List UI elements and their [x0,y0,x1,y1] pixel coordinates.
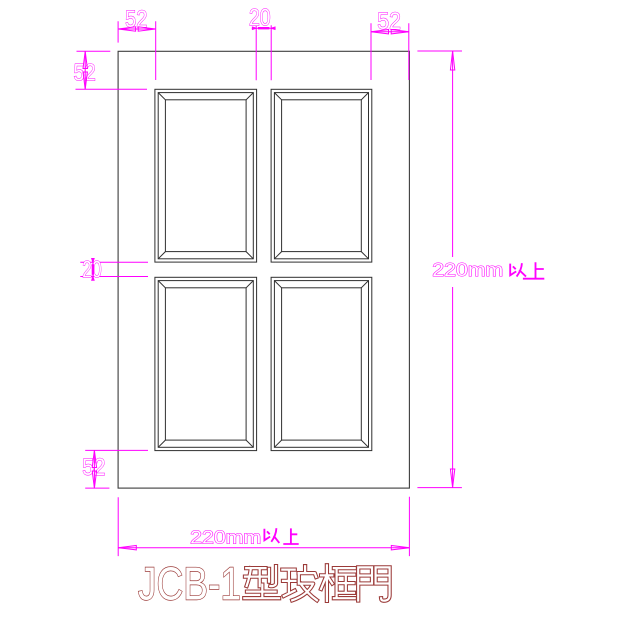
svg-text:220mm: 220mm [432,260,503,280]
svg-text:220mm: 220mm [190,528,261,548]
svg-text:JCB-1: JCB-1 [138,557,241,609]
svg-text:52: 52 [377,8,401,35]
